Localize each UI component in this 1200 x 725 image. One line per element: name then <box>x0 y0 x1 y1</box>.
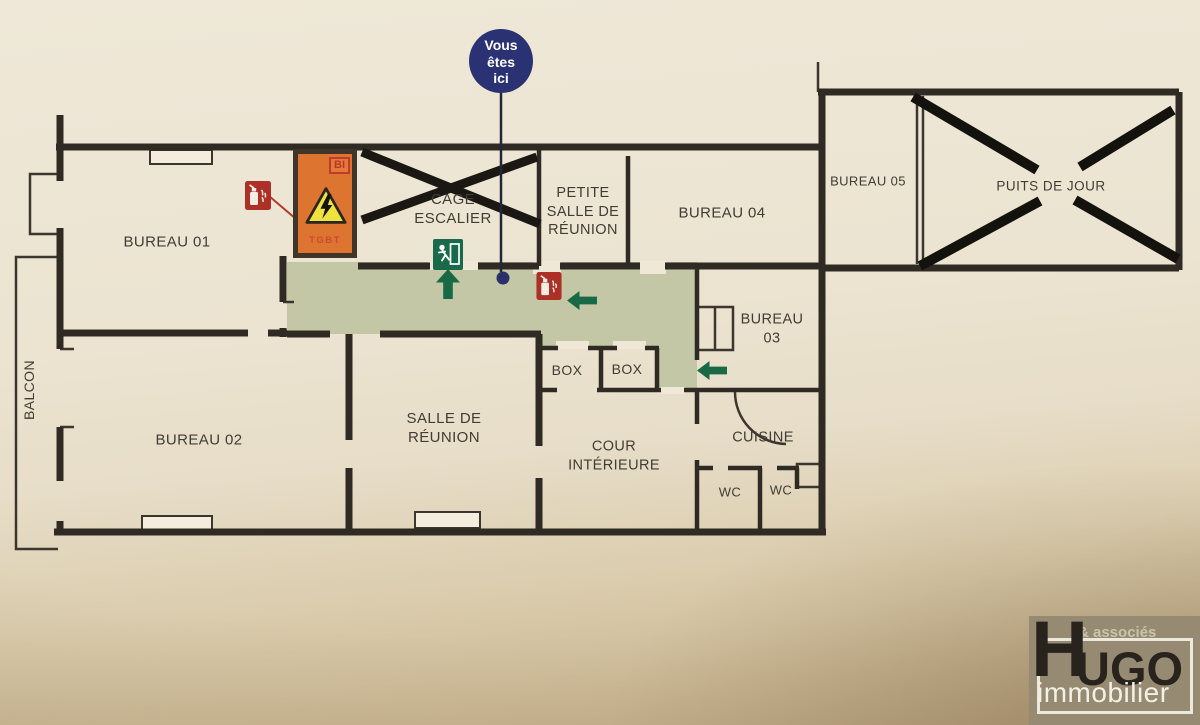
arrow-left-icon <box>697 361 727 380</box>
badge-line-1: Vous <box>469 37 533 54</box>
emergency-exit-icon <box>433 239 463 270</box>
bi-label: BI <box>329 157 350 174</box>
badge-line-2: êtes <box>469 54 533 71</box>
fire-extinguisher-icon <box>245 181 271 210</box>
arrow-up-icon <box>436 269 460 299</box>
you-are-here-pointer-line <box>497 92 510 285</box>
floorplan-linework <box>0 0 1200 725</box>
logo-immobilier-text: immobilier <box>1037 679 1170 707</box>
electrical-hazard-icon <box>305 186 347 225</box>
fire-extinguisher-icon <box>536 272 562 300</box>
hugo-immobilier-logo: & associés H UGO immobilier <box>1029 616 1200 725</box>
room-label-balcon: BALCON <box>21 360 39 420</box>
room-label-cour-interieure: COUR INTÉRIEURE <box>568 437 660 474</box>
room-label-puits-de-jour: PUITS DE JOUR <box>996 177 1105 194</box>
badge-line-3: ici <box>469 70 533 87</box>
logo-associes-text: & associés <box>1078 624 1156 641</box>
room-label-bureau-04: BUREAU 04 <box>679 203 766 222</box>
arrow-left-icon <box>567 291 597 310</box>
tgbt-electrical-room: BI TGBT <box>293 149 357 258</box>
room-label-bureau-01: BUREAU 01 <box>124 232 211 251</box>
room-label-cage-escalier: CAGE ESCALIER <box>414 190 491 228</box>
room-label-wc-left: WC <box>719 485 741 502</box>
you-are-here-badge: Vous êtes ici <box>469 29 533 93</box>
room-label-bureau-05: BUREAU 05 <box>830 174 906 191</box>
room-label-box-left: BOX <box>552 362 583 380</box>
floorplan-photo: BI TGBT <box>0 0 1200 725</box>
tgbt-label: TGBT <box>298 235 352 246</box>
room-label-salle-reunion: SALLE DE RÉUNION <box>407 409 482 447</box>
room-label-cuisine: CUISINE <box>732 429 794 448</box>
room-label-box-right: BOX <box>612 361 643 379</box>
room-label-bureau-03: BUREAU 03 <box>741 310 804 347</box>
room-label-petite-salle-reunion: PETITE SALLE DE RÉUNION <box>547 184 620 240</box>
extinguisher-pointer-line <box>269 196 296 219</box>
room-label-bureau-02: BUREAU 02 <box>156 430 243 449</box>
room-label-wc-right: WC <box>770 483 792 500</box>
